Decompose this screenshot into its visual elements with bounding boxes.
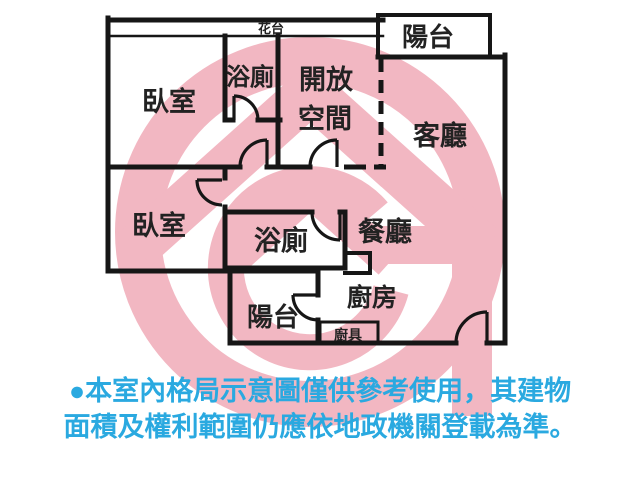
room-label-dining: 餐廳 <box>358 216 412 247</box>
room-label-balcony-top: 陽台 <box>402 22 454 52</box>
room-label-open-space-2: 空間 <box>298 103 352 134</box>
room-label-bath-mid: 浴廁 <box>254 225 308 256</box>
room-label-bedroom-top: 臥室 <box>142 86 196 117</box>
room-label-open-space-1: 開放 <box>299 64 354 95</box>
disclaimer-line-1: ●本室內格局示意圖僅供參考使用，其建物 <box>0 377 640 405</box>
door-open-space <box>310 140 337 167</box>
room-label-kitchen-counter: 廚具 <box>334 327 362 343</box>
room-label-flower-bed: 花台 <box>258 21 284 36</box>
floorplan-page: 花台 陽台 臥室 浴廁 開放 空間 客廳 臥室 浴廁 餐廳 陽台 廚房 廚具 ●… <box>0 0 640 477</box>
room-label-living: 客廳 <box>413 120 467 151</box>
room-label-balcony-bottom: 陽台 <box>247 302 299 332</box>
room-label-bedroom-left: 臥室 <box>132 210 186 241</box>
room-label-bath-top: 浴廁 <box>226 63 274 91</box>
disclaimer-line-2: 面積及權利範圍仍應依地政機關登載為準。 <box>0 413 640 441</box>
room-label-kitchen: 廚房 <box>347 283 397 312</box>
